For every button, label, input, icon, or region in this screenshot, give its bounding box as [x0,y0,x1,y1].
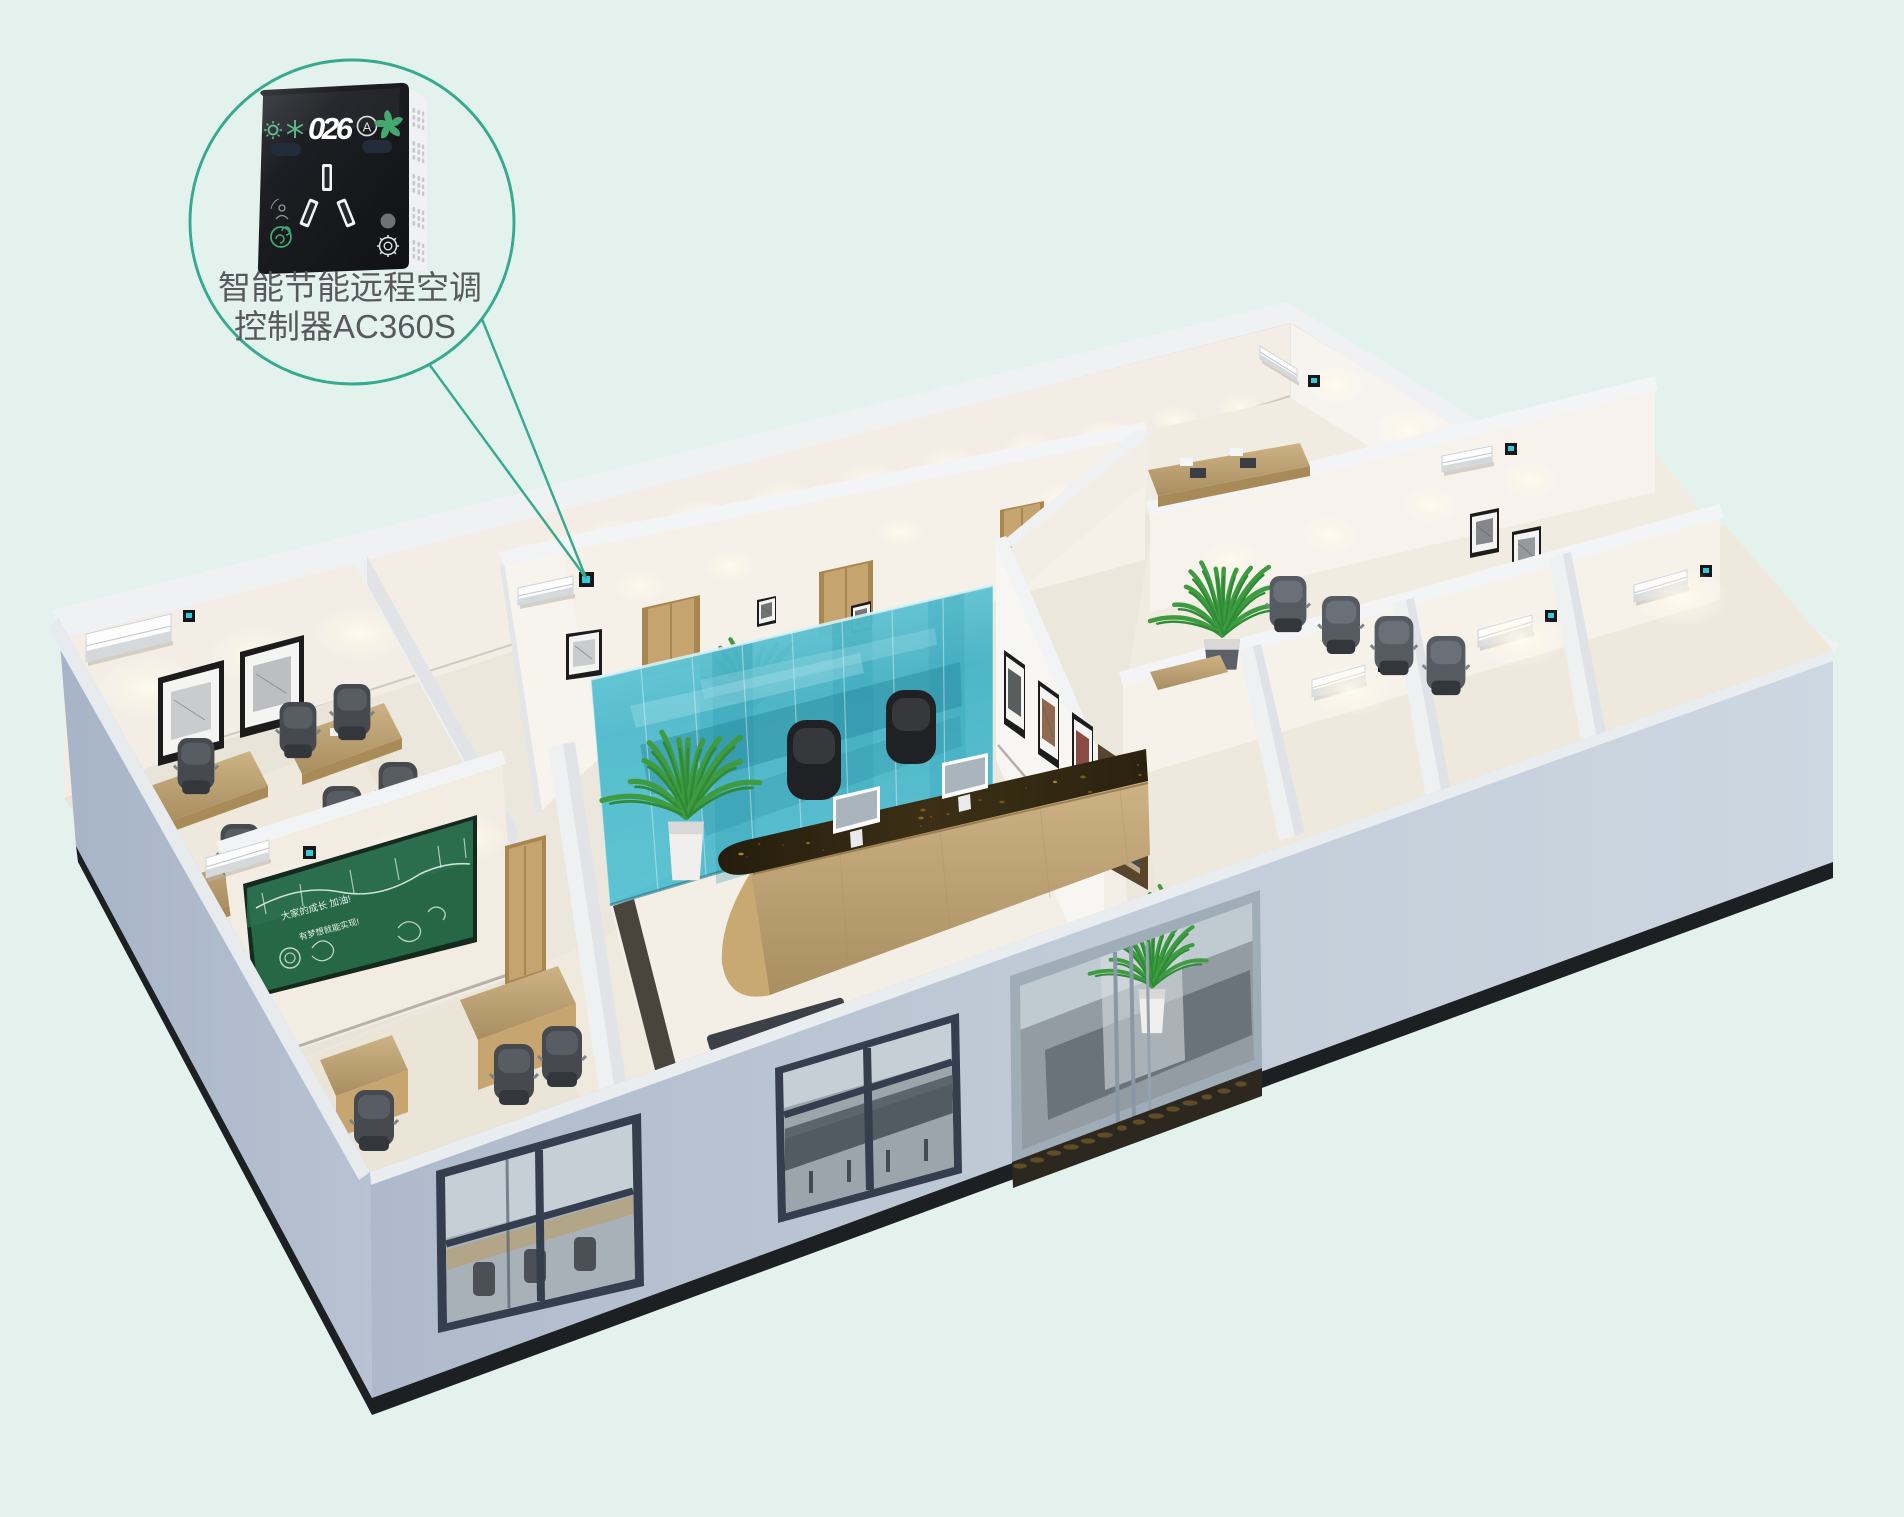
svg-text:控制器AC360S: 控制器AC360S [234,308,456,345]
svg-text:A: A [363,120,372,135]
svg-text:026: 026 [308,111,354,146]
svg-text:智能节能远程空调: 智能节能远程空调 [218,269,482,306]
